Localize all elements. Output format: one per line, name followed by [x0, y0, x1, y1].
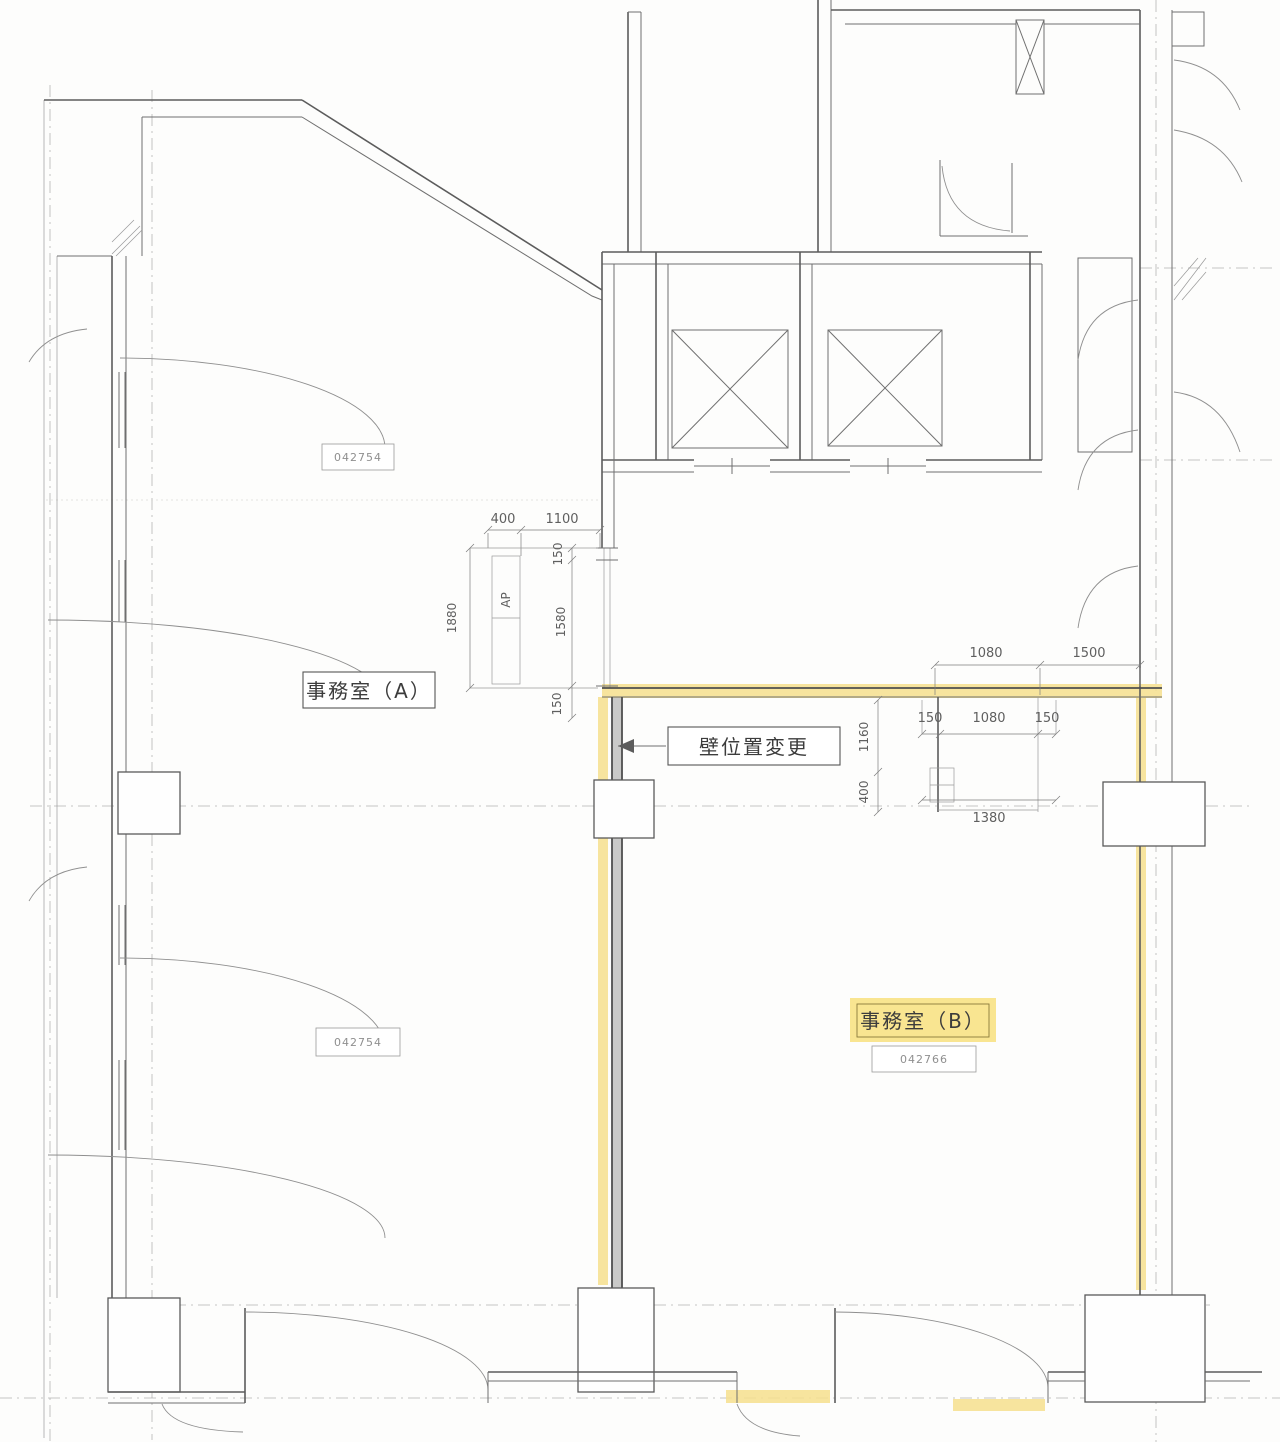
- shaft-rect: [1078, 258, 1132, 452]
- room-a-code-top: 042754: [334, 451, 382, 464]
- dim-1380: 1380: [972, 811, 1005, 826]
- door-swing-arc: [835, 1312, 1048, 1388]
- door-swing-arc: [737, 1404, 800, 1436]
- dim-400-v: 400: [857, 781, 871, 804]
- floor-plan-canvas: 400 1100 1880 150 1580 150 AP 1080 1500 …: [0, 0, 1280, 1442]
- elevator-shaft-2: [828, 330, 942, 446]
- dim-1100: 1100: [545, 512, 578, 527]
- dim-150-right: 150: [1035, 711, 1060, 726]
- piers: [108, 772, 1205, 1402]
- highlight-new-wall-horizontal: [602, 684, 1162, 698]
- dim-1880: 1880: [445, 603, 459, 634]
- dim-150-upper: 150: [551, 543, 565, 566]
- dim-150-left: 150: [918, 711, 943, 726]
- room-labels: 事務室（A） 042754 042754 事務室（B） 042766 壁位置変更: [303, 444, 996, 1072]
- ap-unit: [492, 556, 520, 684]
- dim-1160: 1160: [857, 722, 871, 753]
- door-swing-arc: [942, 166, 1010, 231]
- room-a-code-bottom: 042754: [334, 1036, 382, 1049]
- floor-plan-scan: 400 1100 1880 150 1580 150 AP 1080 1500 …: [0, 0, 1280, 1442]
- center-walls: [602, 688, 1162, 1290]
- elevator-shaft-1: [672, 330, 788, 448]
- grid-lines: [0, 0, 1280, 1442]
- dim-1580: 1580: [554, 607, 568, 638]
- door-swing-arc: [245, 1312, 488, 1390]
- window-swing-arc: [48, 1155, 385, 1238]
- room-b-code: 042766: [900, 1053, 948, 1066]
- window-swing-arc: [29, 867, 87, 901]
- column-pier: [108, 1298, 180, 1392]
- dim-1080-top: 1080: [969, 646, 1002, 661]
- highlight-bottom-wall-1: [726, 1390, 830, 1403]
- dim-400: 400: [491, 512, 516, 527]
- room-b-label: 事務室（B）: [860, 1009, 986, 1033]
- top-right-block: [940, 20, 1242, 452]
- dimensions-left: 400 1100 1880 150 1580 150 AP: [445, 512, 604, 722]
- wall-change-note: 壁位置変更: [699, 735, 809, 759]
- dim-1080-mid: 1080: [972, 711, 1005, 726]
- window-swing-arc: [120, 358, 385, 448]
- elevator-block: [596, 252, 1138, 688]
- highlight-bottom-wall-2: [953, 1399, 1045, 1411]
- dim-1500: 1500: [1072, 646, 1105, 661]
- column-pier: [1103, 782, 1205, 846]
- room-a-label: 事務室（A）: [306, 679, 432, 703]
- dim-150-lower: 150: [550, 693, 564, 716]
- exterior-walls: [44, 0, 1206, 1438]
- dimensions-right: 1080 1500 150 1080 150 1160 400 1380: [857, 646, 1144, 826]
- ap-label: AP: [499, 592, 513, 607]
- door-swing-arc: [162, 1404, 243, 1432]
- column-pier: [594, 780, 654, 838]
- column-pier: [1085, 1295, 1205, 1402]
- window-swing-arc: [29, 329, 87, 362]
- column-pier: [578, 1288, 654, 1392]
- column-pier: [118, 772, 180, 834]
